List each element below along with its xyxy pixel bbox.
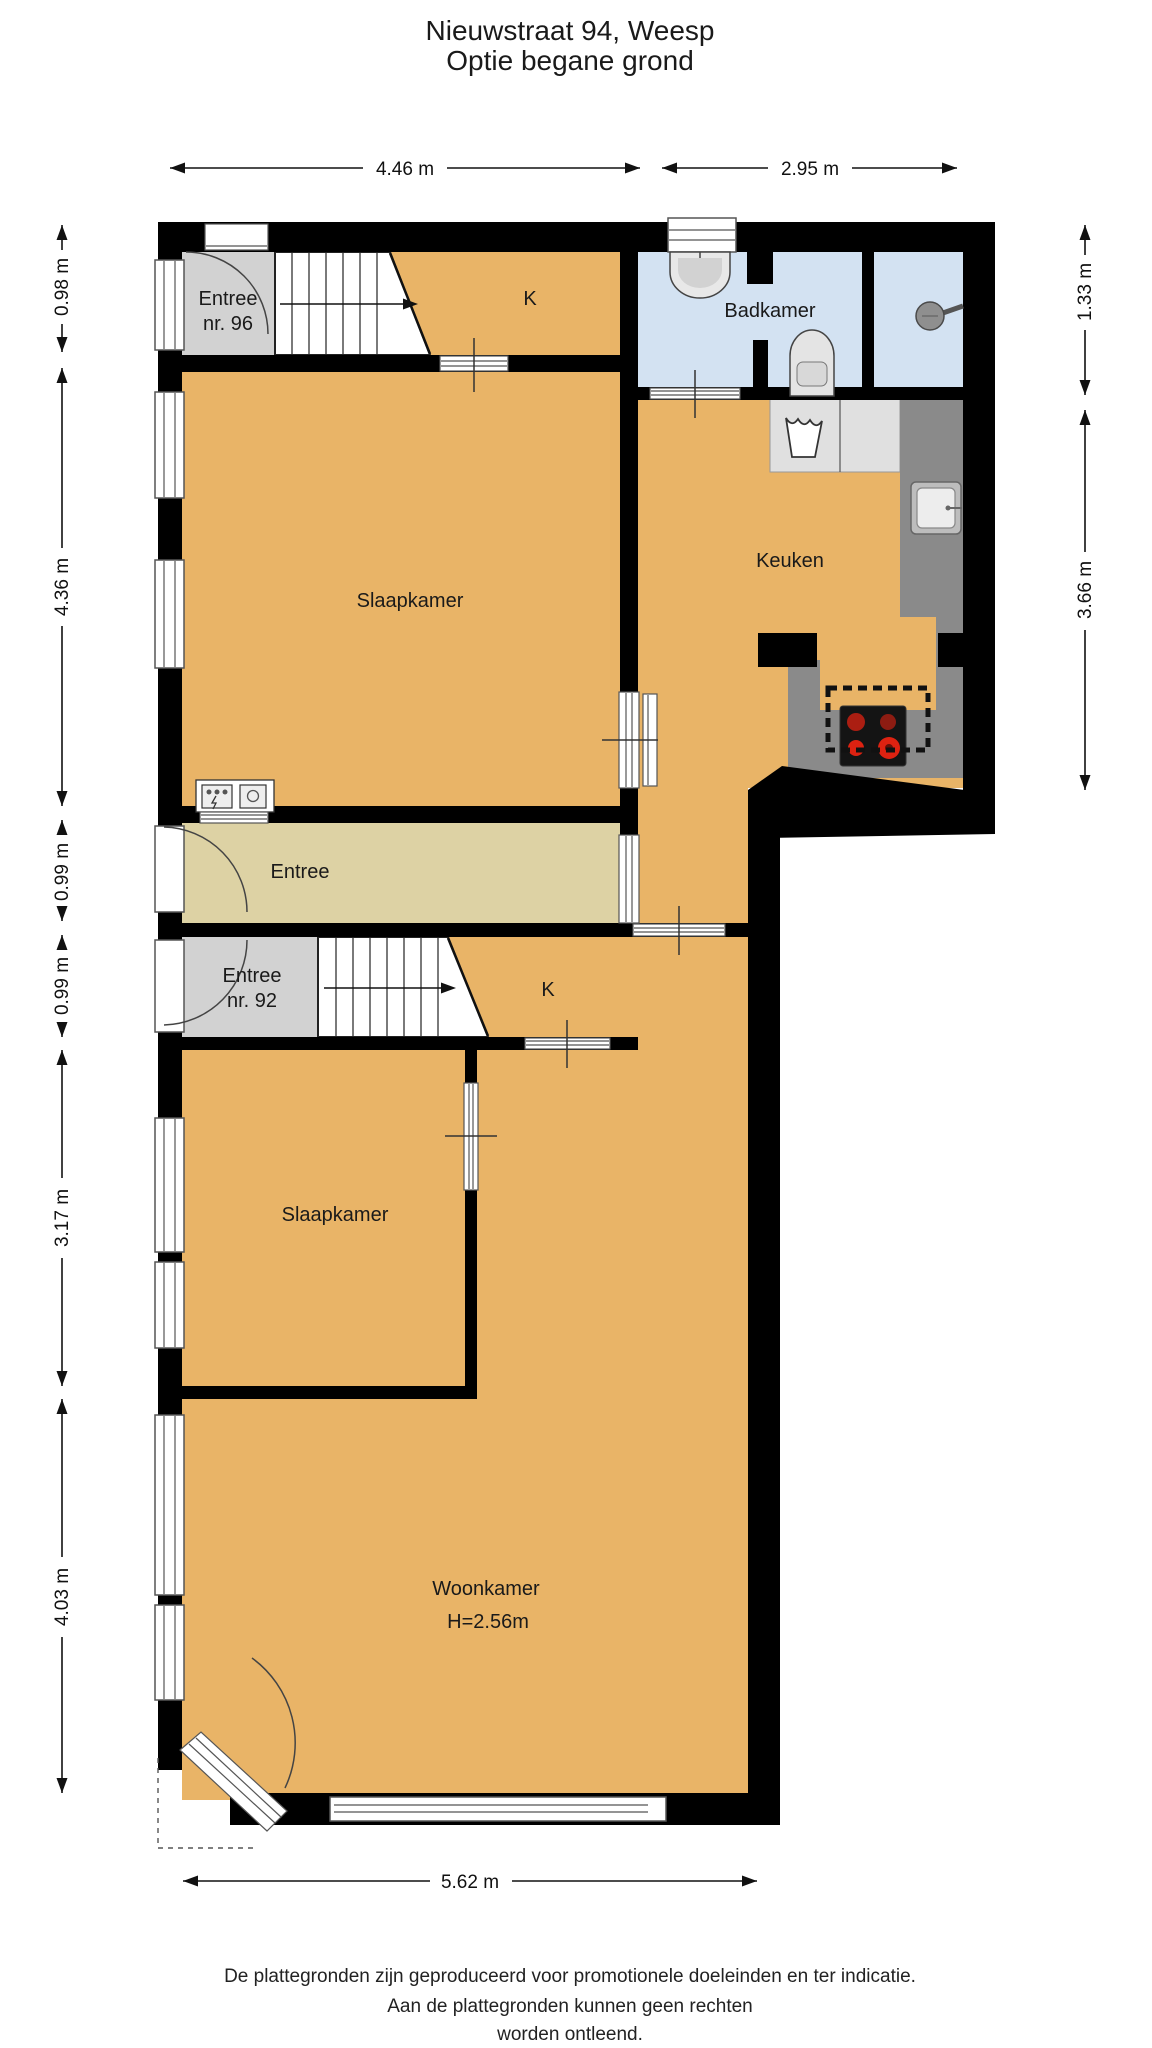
label-badkamer: Badkamer [724, 300, 815, 322]
label-entree96-line1: Entree [199, 288, 258, 310]
dim-right-1: 1.33 m [1075, 225, 1096, 395]
dim-right-2: 3.66 m [1075, 410, 1096, 790]
dim-left-6: 4.03 m [52, 1399, 73, 1793]
cooking-nook-floor [820, 617, 936, 710]
dim-left-5-label: 3.17 m [52, 1189, 73, 1247]
window-left-3 [155, 560, 184, 668]
page-title-line2: Optie begane grond [446, 45, 694, 76]
dim-bottom-1: 5.62 m [183, 1872, 757, 1893]
label-entree96-line2: nr. 96 [203, 313, 253, 335]
dim-left-1-label: 0.98 m [52, 258, 73, 316]
window-left-6 [155, 1415, 184, 1595]
dim-left-3: 0.99 m [52, 820, 73, 921]
dim-right-1-label: 1.33 m [1075, 263, 1096, 321]
dim-left-4: 0.99 m [52, 935, 73, 1037]
floor-corridor [638, 788, 748, 937]
label-k-top: K [523, 288, 537, 310]
wall-badkamer-stub-a [747, 252, 773, 284]
wall-right-upper [963, 222, 995, 800]
label-keuken: Keuken [756, 550, 824, 572]
wall-shower-partition [862, 252, 874, 387]
label-slaapkamer1: Slaapkamer [357, 590, 464, 612]
floor-woonkamer-arm-top [638, 937, 748, 1050]
window-left-2 [155, 392, 184, 498]
dim-left-2: 4.36 m [52, 368, 73, 806]
dim-bottom-1-label: 5.62 m [441, 1872, 499, 1893]
wall-row1-bottom [182, 355, 620, 372]
page-title-line1: Nieuwstraat 94, Weesp [426, 15, 715, 46]
label-entree-hal: Entree [271, 861, 330, 883]
bathroom-sink-icon [670, 252, 730, 298]
kitchen-sink-icon [911, 482, 962, 534]
footer-line1: De plattegronden zijn geproduceerd voor … [224, 1966, 916, 1987]
floorplan-canvas: Entree nr. 96 K Badkamer Slaapkamer Keuk… [0, 0, 1152, 2048]
window-left-4 [155, 1118, 184, 1252]
label-woonkamer-line1: Woonkamer [432, 1578, 540, 1600]
gas-meter-icon [240, 785, 266, 808]
wall-kitchen-stub-left [758, 633, 817, 667]
dim-left-1: 0.98 m [52, 225, 73, 352]
footer-line2: Aan de plattegronden kunnen geen rechten [387, 1996, 753, 2017]
electric-meter-icon [202, 785, 232, 808]
dim-left-6-label: 4.03 m [52, 1568, 73, 1626]
footer-line3: worden ontleend. [496, 2024, 643, 2045]
wall-top [158, 222, 995, 252]
wall-right-lower [748, 808, 780, 1825]
dim-left-2-label: 4.36 m [52, 558, 73, 616]
floor-entree-hal [182, 806, 620, 937]
window-left-7 [155, 1605, 184, 1700]
dim-left-4-label: 0.99 m [52, 957, 73, 1015]
window-left-1 [155, 260, 184, 350]
label-k-92: K [541, 979, 555, 1001]
wall-interior-vertical [620, 252, 638, 937]
toilet-icon [790, 330, 834, 396]
meter-niche [196, 780, 274, 823]
dim-left-5: 3.17 m [52, 1050, 73, 1386]
door-hal-corridor [619, 835, 639, 923]
label-entree92-line2: nr. 92 [227, 990, 277, 1012]
label-woonkamer-line2: H=2.56m [447, 1611, 529, 1633]
dim-top-2-label: 2.95 m [781, 159, 839, 180]
dim-top-1-label: 4.46 m [376, 159, 434, 180]
room-floors [182, 252, 963, 1800]
window-woonkamer-bottom [330, 1797, 666, 1821]
label-slaapkamer2: Slaapkamer [282, 1204, 389, 1226]
window-left-5 [155, 1262, 184, 1348]
floorplan-page: Entree nr. 96 K Badkamer Slaapkamer Keuk… [0, 0, 1152, 2048]
floor-entree92 [182, 937, 318, 1037]
label-entree92-line1: Entree [223, 965, 282, 987]
wall-badkamer-stub-b [753, 340, 768, 387]
window-badkamer-top [668, 218, 736, 252]
dim-top-2: 2.95 m [662, 159, 957, 180]
meter-niche-door [200, 812, 268, 823]
dim-top-1: 4.46 m [170, 159, 640, 180]
wall-kitchen-stub-right [938, 633, 963, 667]
dim-left-3-label: 0.99 m [52, 843, 73, 901]
wall-slaap2-bottom [182, 1386, 477, 1399]
dim-right-2-label: 3.66 m [1075, 561, 1096, 619]
